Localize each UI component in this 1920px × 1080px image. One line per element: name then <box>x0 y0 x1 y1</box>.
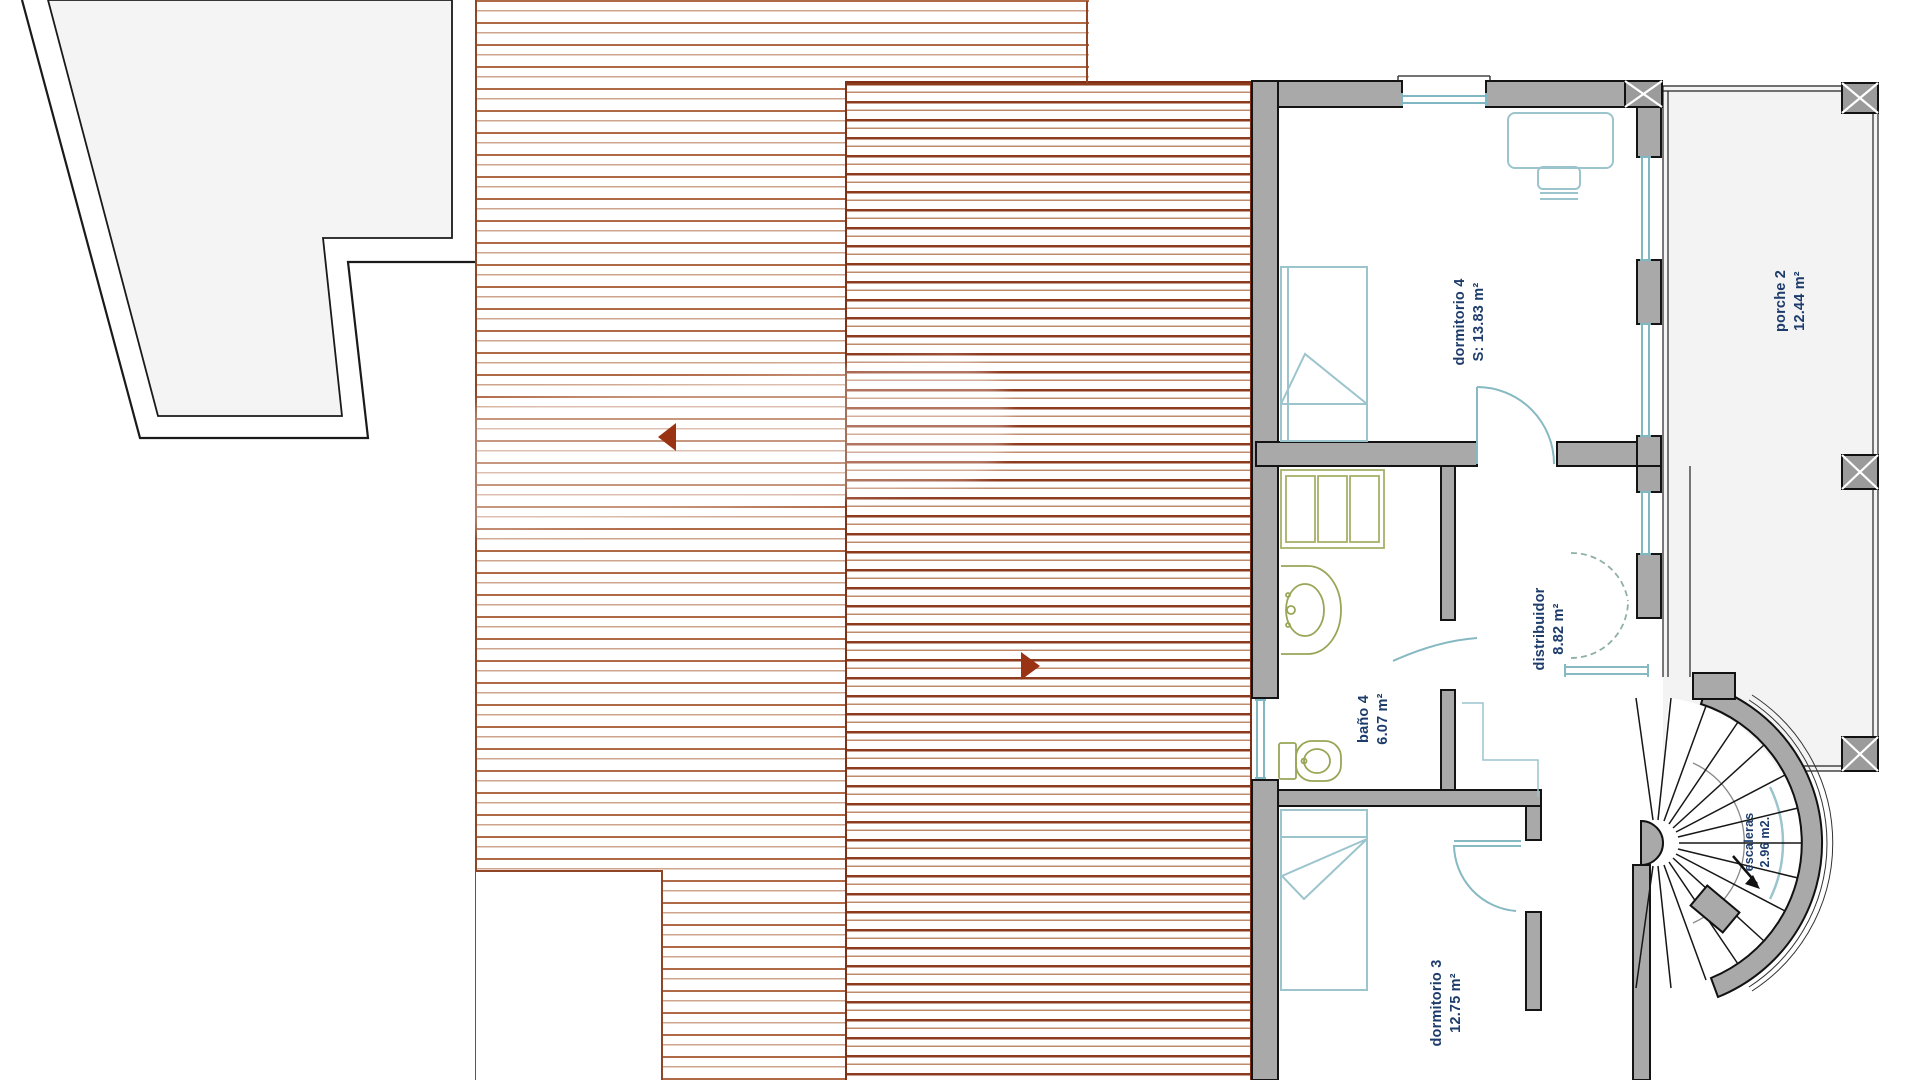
double-door-leaves-icon <box>1571 553 1628 658</box>
hatch-boundaries <box>476 1 1087 1080</box>
room-label-dormitorio-4: dormitorio 4 S: 13.83 m² <box>1451 279 1489 366</box>
window-bath-left-icon <box>1255 700 1266 778</box>
window-bedroom4-right-2-icon <box>1640 324 1651 436</box>
room-label-escaleras: escaleras 2.96 m2. <box>1741 813 1774 872</box>
windows <box>1255 93 1651 778</box>
slope-arrow-right-icon <box>1021 652 1040 680</box>
window-hall-right-icon <box>1640 492 1651 554</box>
door-bedroom4-icon <box>1477 387 1554 464</box>
room-label-porche-2: porche 2 12.44 m² <box>1772 270 1810 332</box>
porch-area <box>1663 85 1878 771</box>
room-label-distribuidor: distribuidor 8.82 m² <box>1531 588 1569 671</box>
slope-arrow-left-icon <box>658 423 676 451</box>
floor-plan-drawing <box>0 0 1920 1080</box>
double-door-threshold-icon <box>1565 664 1648 677</box>
bed-bedroom3-icon <box>1281 810 1367 990</box>
room-label-dormitorio-3: dormitorio 3 12.75 m² <box>1428 960 1466 1047</box>
room-label-bano-4: baño 4 6.07 m² <box>1355 693 1393 744</box>
bed-bedroom4-icon <box>1281 267 1367 441</box>
door-bedroom3-icon <box>1454 841 1521 911</box>
wardrobe-icon <box>1281 470 1384 548</box>
toilet-icon <box>1279 741 1341 781</box>
desk-icon <box>1508 113 1613 199</box>
hall-steps-icon <box>1462 703 1538 797</box>
terrace-roof-polygon <box>22 0 475 438</box>
sink-icon <box>1281 566 1341 654</box>
floor-plan-canvas: dormitorio 4 S: 13.83 m² porche 2 12.44 … <box>0 0 1920 1080</box>
walls <box>1252 81 1661 1080</box>
window-bedroom4-right-1-icon <box>1640 157 1651 260</box>
door-bath-icon <box>1393 638 1477 661</box>
window-top-icon <box>1402 93 1486 106</box>
window-exterior-sill <box>1398 76 1490 81</box>
